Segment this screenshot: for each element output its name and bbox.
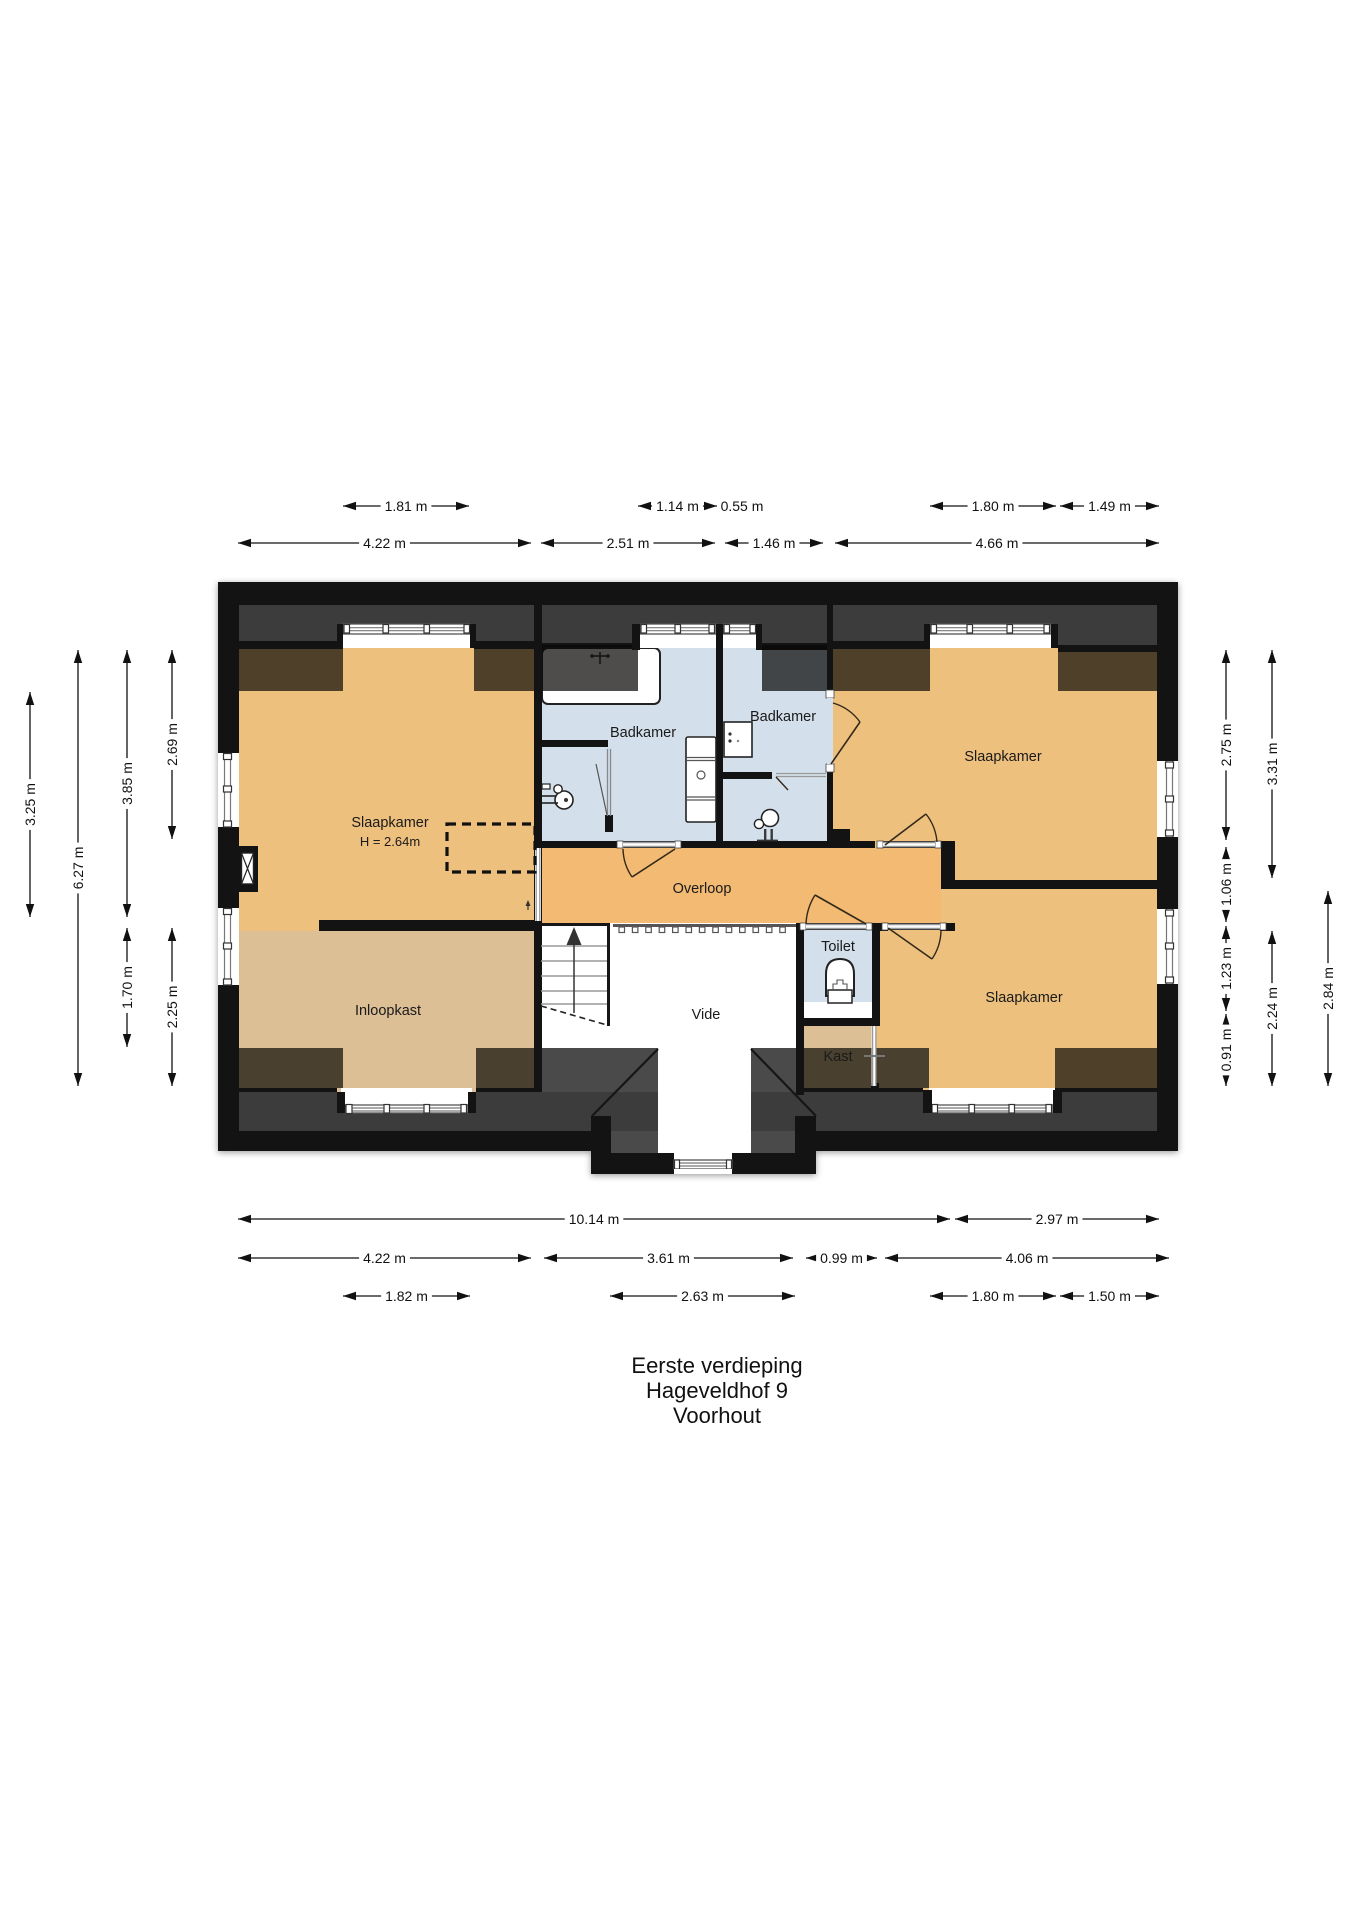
svg-text:Badkamer: Badkamer bbox=[610, 725, 676, 741]
svg-text:Badkamer: Badkamer bbox=[750, 709, 816, 725]
svg-text:Slaapkamer: Slaapkamer bbox=[985, 990, 1063, 1006]
svg-text:3.61 m: 3.61 m bbox=[647, 1250, 690, 1266]
svg-text:2.69 m: 2.69 m bbox=[164, 723, 180, 766]
svg-text:Inloopkast: Inloopkast bbox=[355, 1003, 421, 1019]
svg-text:4.06 m: 4.06 m bbox=[1006, 1250, 1049, 1266]
svg-text:4.22 m: 4.22 m bbox=[363, 1250, 406, 1266]
svg-text:Voorhout: Voorhout bbox=[673, 1403, 761, 1428]
svg-text:2.84 m: 2.84 m bbox=[1320, 967, 1336, 1010]
svg-text:2.63 m: 2.63 m bbox=[681, 1288, 724, 1304]
svg-text:2.97 m: 2.97 m bbox=[1036, 1211, 1079, 1227]
svg-text:Slaapkamer: Slaapkamer bbox=[351, 815, 429, 831]
svg-text:Kast: Kast bbox=[823, 1049, 852, 1065]
svg-text:6.27 m: 6.27 m bbox=[70, 847, 86, 890]
svg-text:Overloop: Overloop bbox=[673, 881, 732, 897]
svg-text:1.23 m: 1.23 m bbox=[1218, 947, 1234, 990]
svg-text:1.82 m: 1.82 m bbox=[385, 1288, 428, 1304]
svg-text:3.31 m: 3.31 m bbox=[1264, 743, 1280, 786]
svg-text:1.70 m: 1.70 m bbox=[119, 966, 135, 1009]
svg-text:1.80 m: 1.80 m bbox=[972, 498, 1015, 514]
svg-text:1.49 m: 1.49 m bbox=[1088, 498, 1131, 514]
svg-text:3.25 m: 3.25 m bbox=[22, 783, 38, 826]
svg-text:H = 2.64m: H = 2.64m bbox=[360, 834, 420, 849]
svg-text:0.99 m: 0.99 m bbox=[820, 1250, 863, 1266]
svg-text:1.06 m: 1.06 m bbox=[1218, 863, 1234, 906]
svg-text:Hageveldhof 9: Hageveldhof 9 bbox=[646, 1378, 788, 1403]
svg-text:4.22 m: 4.22 m bbox=[363, 535, 406, 551]
svg-text:Toilet: Toilet bbox=[821, 939, 855, 955]
svg-text:1.46 m: 1.46 m bbox=[753, 535, 796, 551]
svg-text:0.55 m: 0.55 m bbox=[721, 498, 764, 514]
svg-text:2.51 m: 2.51 m bbox=[607, 535, 650, 551]
svg-text:10.14 m: 10.14 m bbox=[569, 1211, 620, 1227]
svg-text:3.85 m: 3.85 m bbox=[119, 762, 135, 805]
svg-text:2.25 m: 2.25 m bbox=[164, 986, 180, 1029]
svg-text:1.14 m: 1.14 m bbox=[656, 498, 699, 514]
svg-text:1.50 m: 1.50 m bbox=[1088, 1288, 1131, 1304]
svg-text:Vide: Vide bbox=[692, 1007, 721, 1023]
svg-text:Slaapkamer: Slaapkamer bbox=[964, 749, 1042, 765]
svg-text:1.80 m: 1.80 m bbox=[972, 1288, 1015, 1304]
svg-text:2.75 m: 2.75 m bbox=[1218, 724, 1234, 767]
svg-text:2.24 m: 2.24 m bbox=[1264, 987, 1280, 1030]
svg-text:4.66 m: 4.66 m bbox=[976, 535, 1019, 551]
svg-text:1.81 m: 1.81 m bbox=[385, 498, 428, 514]
svg-text:0.91 m: 0.91 m bbox=[1218, 1029, 1234, 1072]
svg-text:Eerste verdieping: Eerste verdieping bbox=[631, 1353, 802, 1378]
